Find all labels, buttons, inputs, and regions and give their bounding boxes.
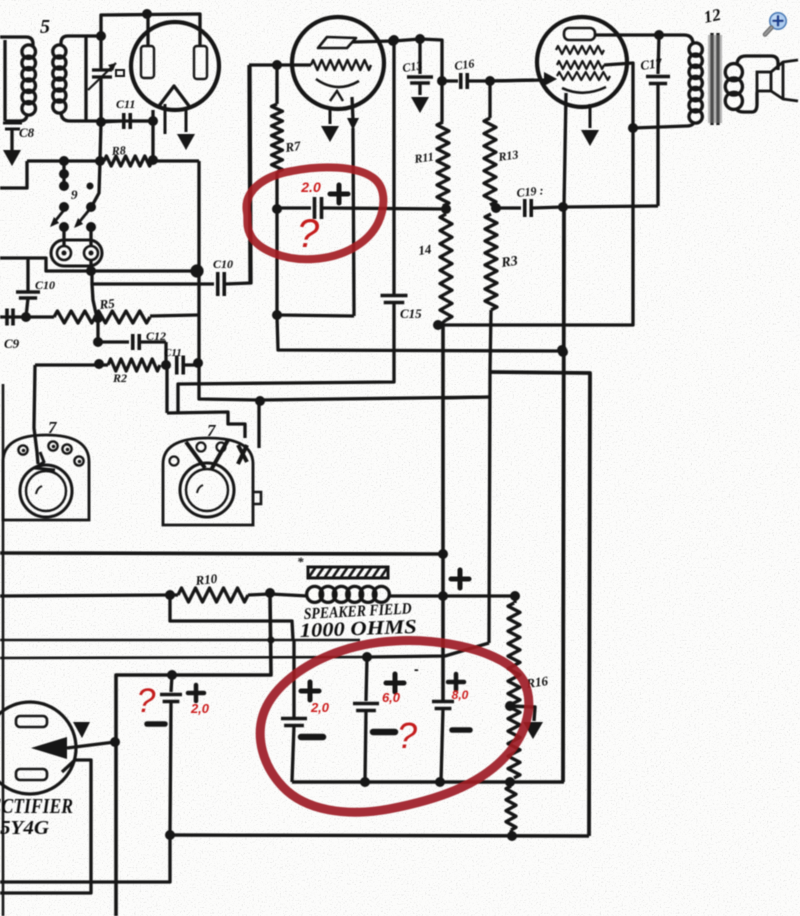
svg-text:C12: C12 [146, 329, 166, 343]
svg-text:2,0: 2,0 [310, 700, 330, 715]
svg-text:R7: R7 [283, 138, 302, 155]
svg-text:C13: C13 [401, 58, 423, 75]
svg-text:R5: R5 [98, 295, 116, 312]
svg-text:C9: C9 [4, 336, 20, 351]
svg-text:R2: R2 [112, 371, 127, 385]
svg-text:C16: C16 [453, 56, 475, 73]
svg-text:2,0: 2,0 [190, 701, 210, 716]
svg-text:C10: C10 [213, 257, 233, 271]
svg-text:?: ? [297, 212, 320, 256]
svg-text:8,0: 8,0 [452, 688, 469, 702]
svg-text:R3: R3 [499, 254, 518, 271]
svg-text:5Y4G: 5Y4G [0, 817, 50, 839]
svg-text:C11: C11 [116, 97, 135, 111]
svg-text:C10: C10 [35, 278, 55, 292]
svg-text:-: - [414, 661, 419, 677]
svg-text:RECTIFIER: RECTIFIER [0, 794, 73, 818]
svg-text:R13: R13 [496, 147, 519, 164]
svg-text:*: * [297, 554, 304, 569]
svg-text:C19 :: C19 : [516, 183, 544, 200]
svg-text:?: ? [137, 682, 156, 720]
svg-text:9: 9 [71, 187, 78, 202]
svg-text:14: 14 [417, 241, 432, 258]
svg-text:R11: R11 [412, 149, 434, 166]
svg-text:C17: C17 [639, 55, 663, 73]
svg-text:?: ? [397, 715, 417, 756]
svg-text:R10: R10 [194, 571, 219, 588]
svg-text:5: 5 [40, 16, 50, 38]
svg-text:C8: C8 [19, 125, 35, 140]
svg-text:R8: R8 [110, 143, 126, 158]
svg-text:C11: C11 [164, 347, 182, 359]
svg-text:C15: C15 [400, 306, 422, 321]
svg-text:2.0: 2.0 [300, 179, 321, 195]
svg-text:6,0: 6,0 [382, 690, 401, 705]
